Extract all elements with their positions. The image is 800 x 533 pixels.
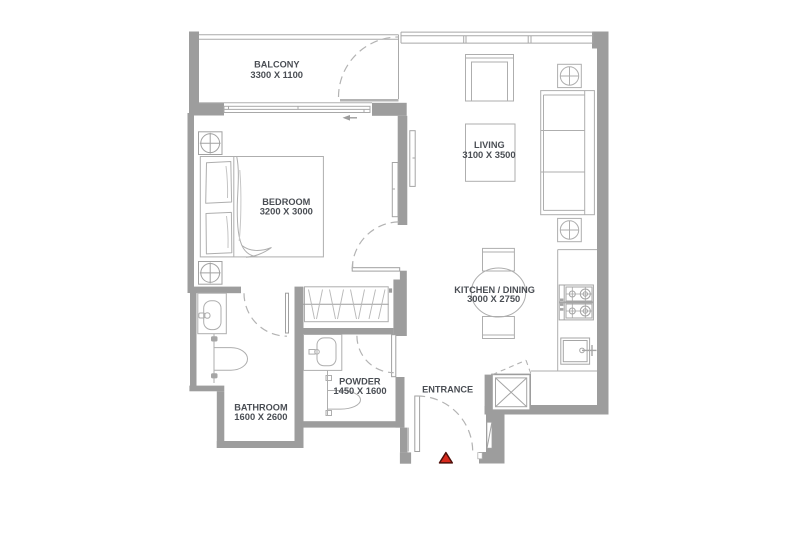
svg-text:ENTRANCE: ENTRANCE xyxy=(422,384,473,394)
svg-text:3200 X 3000: 3200 X 3000 xyxy=(260,206,313,217)
svg-text:3000 X 2750: 3000 X 2750 xyxy=(467,293,520,304)
svg-text:3300 X 1100: 3300 X 1100 xyxy=(250,69,303,80)
svg-text:3100 X 3500: 3100 X 3500 xyxy=(462,149,515,160)
svg-text:1450 X 1600: 1450 X 1600 xyxy=(333,385,386,396)
svg-text:1600 X 2600: 1600 X 2600 xyxy=(234,411,287,422)
